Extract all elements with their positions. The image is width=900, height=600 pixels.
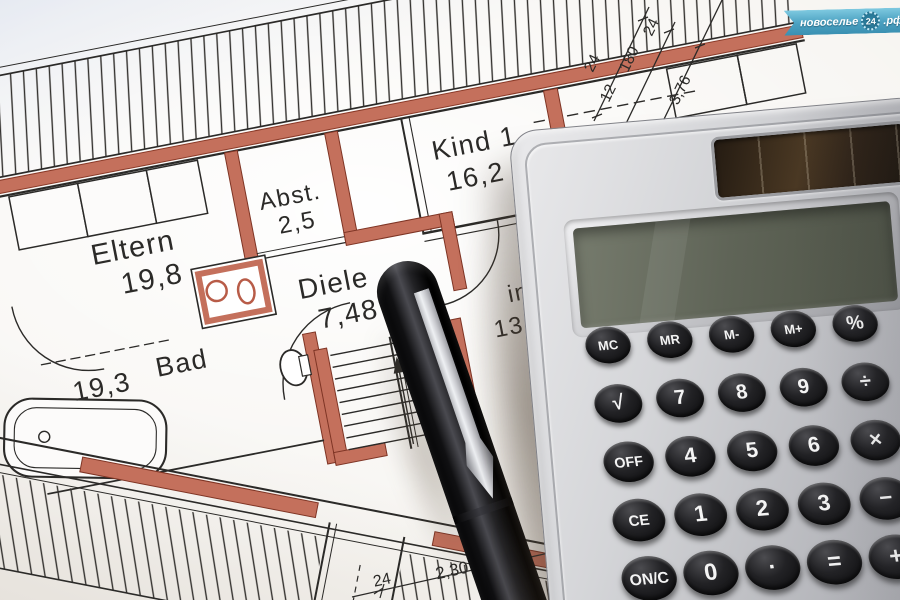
key-CE[interactable]: CE (608, 496, 668, 543)
abst-wall-right (325, 131, 359, 241)
watermark-tld: .рф (883, 14, 900, 27)
calculator: MCMRM-M+%√789÷OFF456×CE123−ON/C0·=+ (508, 87, 900, 600)
dim-top-376: 3,76 (666, 73, 695, 108)
key-−[interactable]: − (856, 475, 900, 522)
key-·[interactable]: · (741, 543, 803, 592)
key-×[interactable]: × (847, 417, 900, 462)
key-8[interactable]: 8 (714, 371, 768, 413)
key-0[interactable]: 0 (679, 548, 741, 597)
key-9[interactable]: 9 (776, 366, 830, 408)
photo-stage: Eltern 19,8 Abst. 2,5 Kind 1 16,2 Diele … (0, 0, 900, 600)
key-3[interactable]: 3 (794, 480, 854, 527)
watermark-badge: 24 (866, 16, 876, 26)
key-=[interactable]: = (803, 537, 865, 586)
calculator-keypad: MCMRM-M+%√789÷OFF456×CE123−ON/C0·=+ (571, 291, 900, 600)
key-1[interactable]: 1 (670, 491, 730, 538)
watermark-brand: новоселье (800, 15, 859, 29)
key-M-[interactable]: M- (705, 314, 756, 354)
key-5[interactable]: 5 (723, 428, 780, 473)
dim-bottom-24: 24 (372, 570, 393, 590)
key-4[interactable]: 4 (661, 434, 718, 479)
watermark-ribbon: новоселье 24 .рф (784, 7, 900, 35)
dim-top-12: 12 (597, 82, 620, 105)
key-7[interactable]: 7 (652, 376, 706, 418)
key-÷[interactable]: ÷ (838, 360, 892, 402)
watermark-gear-icon: 24 (861, 11, 880, 30)
key-MR[interactable]: MR (644, 319, 695, 359)
key-6[interactable]: 6 (785, 423, 842, 468)
key-%[interactable]: % (829, 303, 880, 343)
key-√[interactable]: √ (591, 382, 645, 424)
key-ON/C[interactable]: ON/C (617, 553, 679, 600)
abst-wall-left (224, 150, 258, 260)
door-arc-eltern (12, 292, 103, 383)
key-MC[interactable]: MC (582, 324, 633, 364)
room-area-abst: 2,5 (276, 206, 318, 240)
key-M+[interactable]: M+ (767, 308, 818, 348)
key-+[interactable]: + (864, 532, 900, 581)
room-label-bad: Bad (153, 343, 210, 382)
key-2[interactable]: 2 (732, 485, 792, 532)
key-OFF[interactable]: OFF (600, 439, 657, 484)
stove-counter (191, 255, 276, 328)
